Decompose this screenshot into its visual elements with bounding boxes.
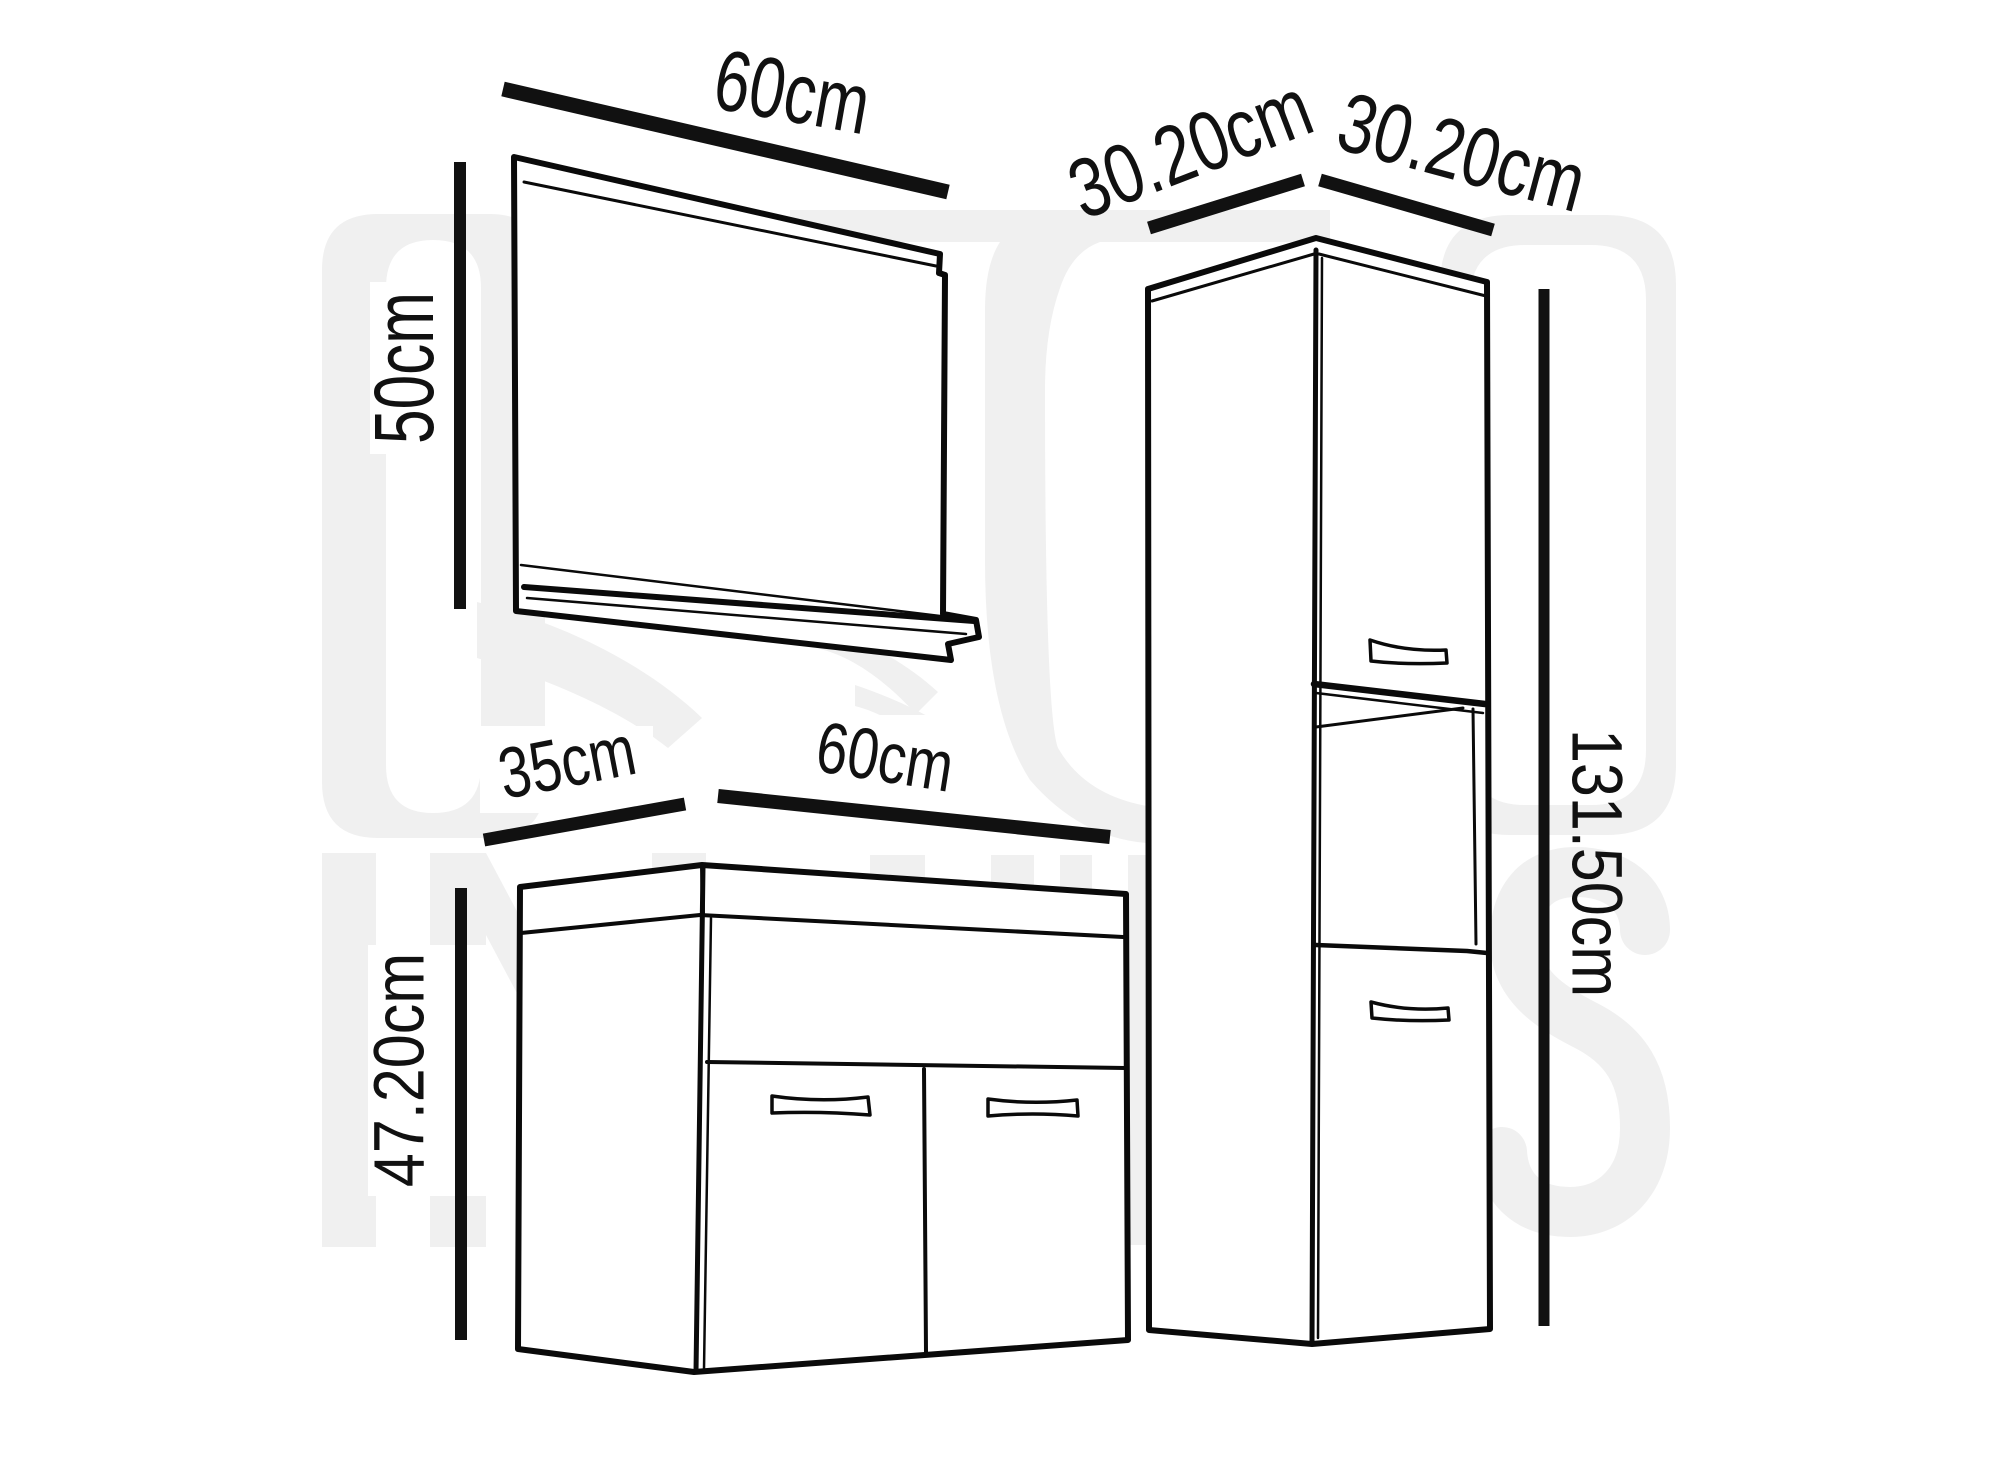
svg-text:131.50cm: 131.50cm — [1556, 729, 1635, 997]
svg-text:47.20cm: 47.20cm — [360, 953, 439, 1187]
svg-text:50cm: 50cm — [357, 292, 451, 444]
